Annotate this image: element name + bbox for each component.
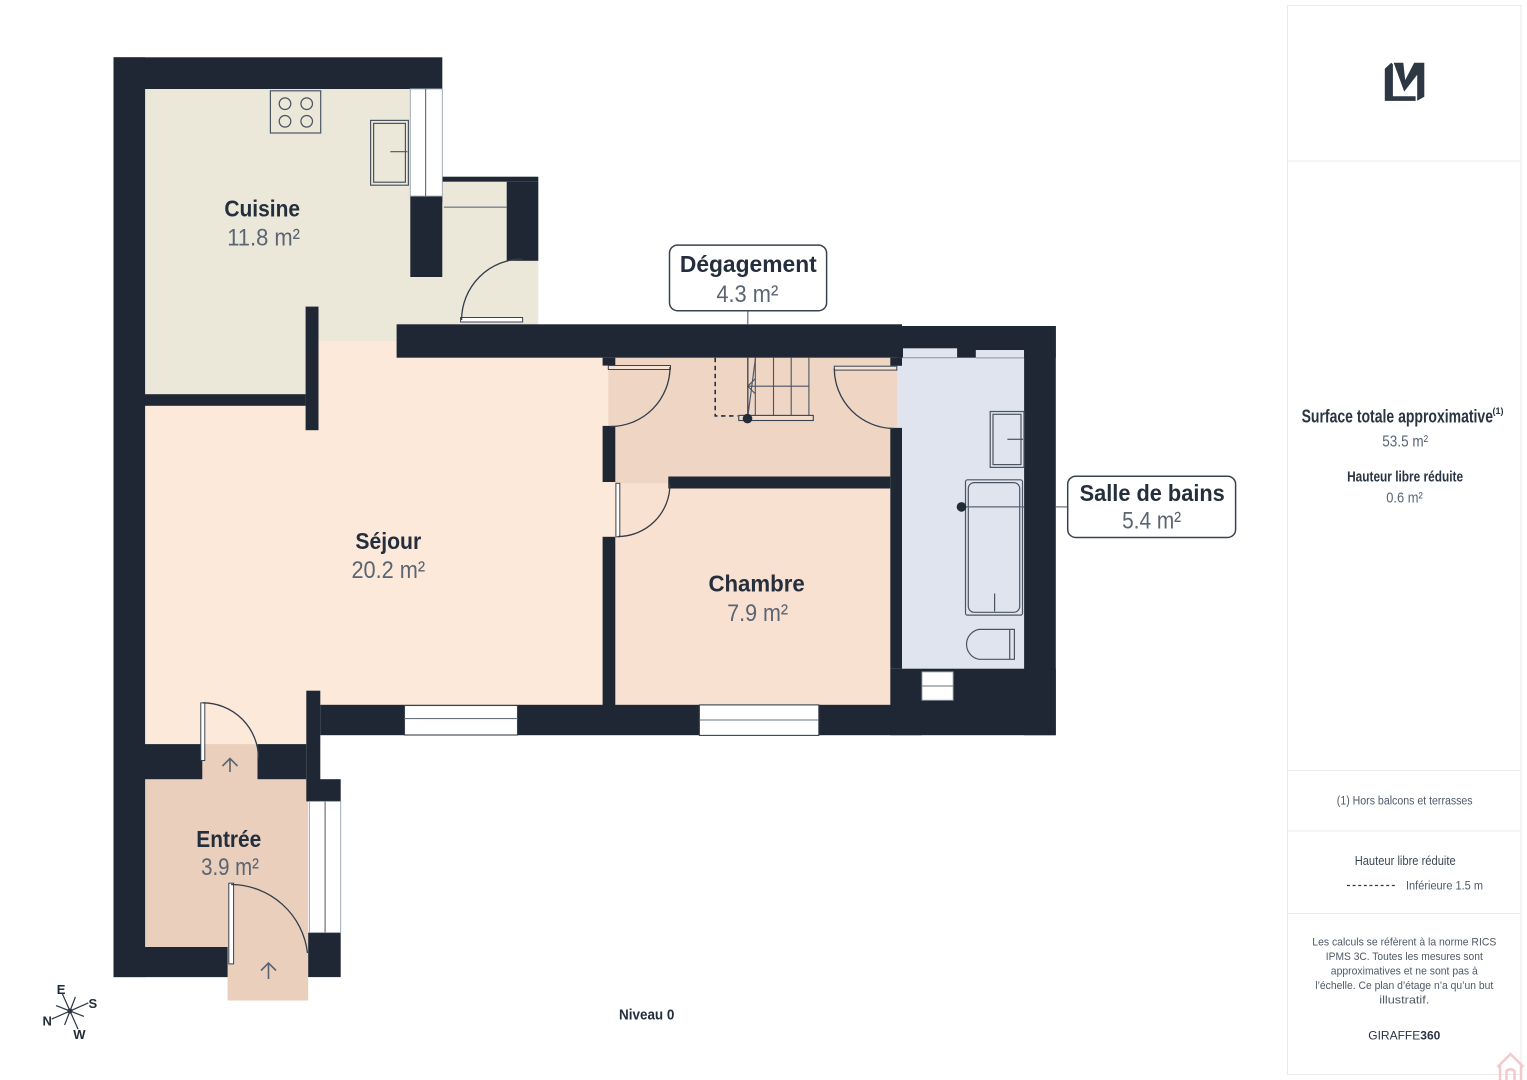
- svg-text:Les calculs se réfèrent à la n: Les calculs se réfèrent à la norme RICS: [1312, 937, 1496, 949]
- svg-text:Entrée: Entrée: [196, 826, 261, 852]
- svg-text:Niveau 0: Niveau 0: [619, 1007, 674, 1023]
- svg-text:Salle de bains: Salle de bains: [1080, 480, 1225, 506]
- svg-text:20.2 m²: 20.2 m²: [351, 557, 425, 584]
- svg-text:IPMS 3C. Toutes les mesures so: IPMS 3C. Toutes les mesures sont: [1326, 951, 1483, 963]
- svg-text:5.4 m²: 5.4 m²: [1122, 508, 1181, 535]
- svg-text:(1) Hors balcons et terrasses: (1) Hors balcons et terrasses: [1337, 796, 1473, 808]
- svg-text:N: N: [43, 1014, 52, 1029]
- svg-text:11.8 m²: 11.8 m²: [227, 224, 300, 251]
- svg-text:Chambre: Chambre: [708, 570, 804, 596]
- svg-text:W: W: [73, 1027, 86, 1042]
- svg-text:approximatives et ne sont pas: approximatives et ne sont pas à: [1331, 966, 1479, 978]
- svg-text:3.9 m²: 3.9 m²: [201, 854, 259, 881]
- svg-text:4.3 m²: 4.3 m²: [716, 281, 778, 308]
- svg-text:53.5 m²: 53.5 m²: [1382, 434, 1428, 451]
- svg-text:Hauteur libre réduite: Hauteur libre réduite: [1347, 469, 1463, 486]
- svg-text:Cuisine: Cuisine: [224, 195, 300, 221]
- svg-text:Dégagement: Dégagement: [680, 251, 817, 277]
- svg-text:GIRAFFE360: GIRAFFE360: [1368, 1029, 1440, 1043]
- svg-text:Inférieure 1.5 m: Inférieure 1.5 m: [1406, 881, 1483, 893]
- svg-text:(1): (1): [1493, 406, 1504, 416]
- svg-text:7.9 m²: 7.9 m²: [727, 600, 788, 627]
- svg-text:illustratif.: illustratif.: [1379, 995, 1429, 1007]
- svg-text:E: E: [57, 982, 66, 997]
- svg-text:Hauteur libre réduite: Hauteur libre réduite: [1355, 854, 1456, 868]
- svg-text:l’échelle. Ce plan d’étage n’a: l’échelle. Ce plan d’étage n’a qu’un but: [1315, 980, 1493, 992]
- svg-text:S: S: [88, 996, 97, 1011]
- svg-text:Séjour: Séjour: [355, 528, 421, 554]
- svg-text:0.6 m²: 0.6 m²: [1386, 489, 1423, 506]
- svg-text:Surface totale approximative: Surface totale approximative: [1302, 407, 1493, 427]
